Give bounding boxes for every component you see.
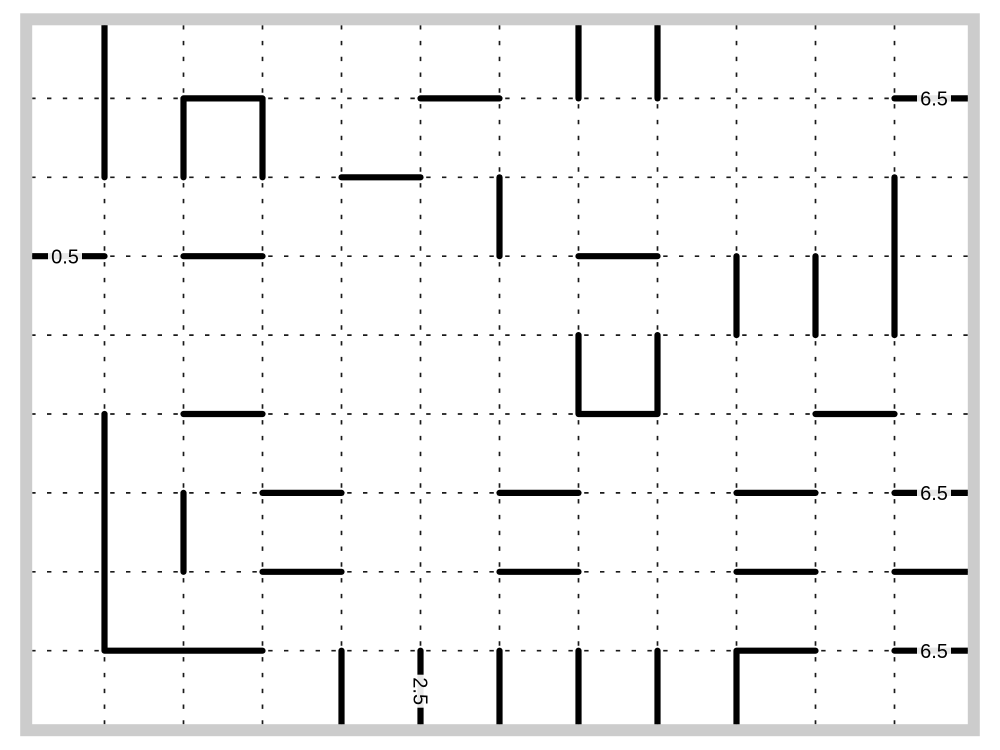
svg-text:6.5: 6.5 <box>920 641 948 663</box>
svg-text:2.5: 2.5 <box>408 677 430 705</box>
svg-text:6.5: 6.5 <box>920 89 948 111</box>
svg-text:6.5: 6.5 <box>920 483 948 505</box>
svg-text:0.5: 0.5 <box>51 246 79 268</box>
